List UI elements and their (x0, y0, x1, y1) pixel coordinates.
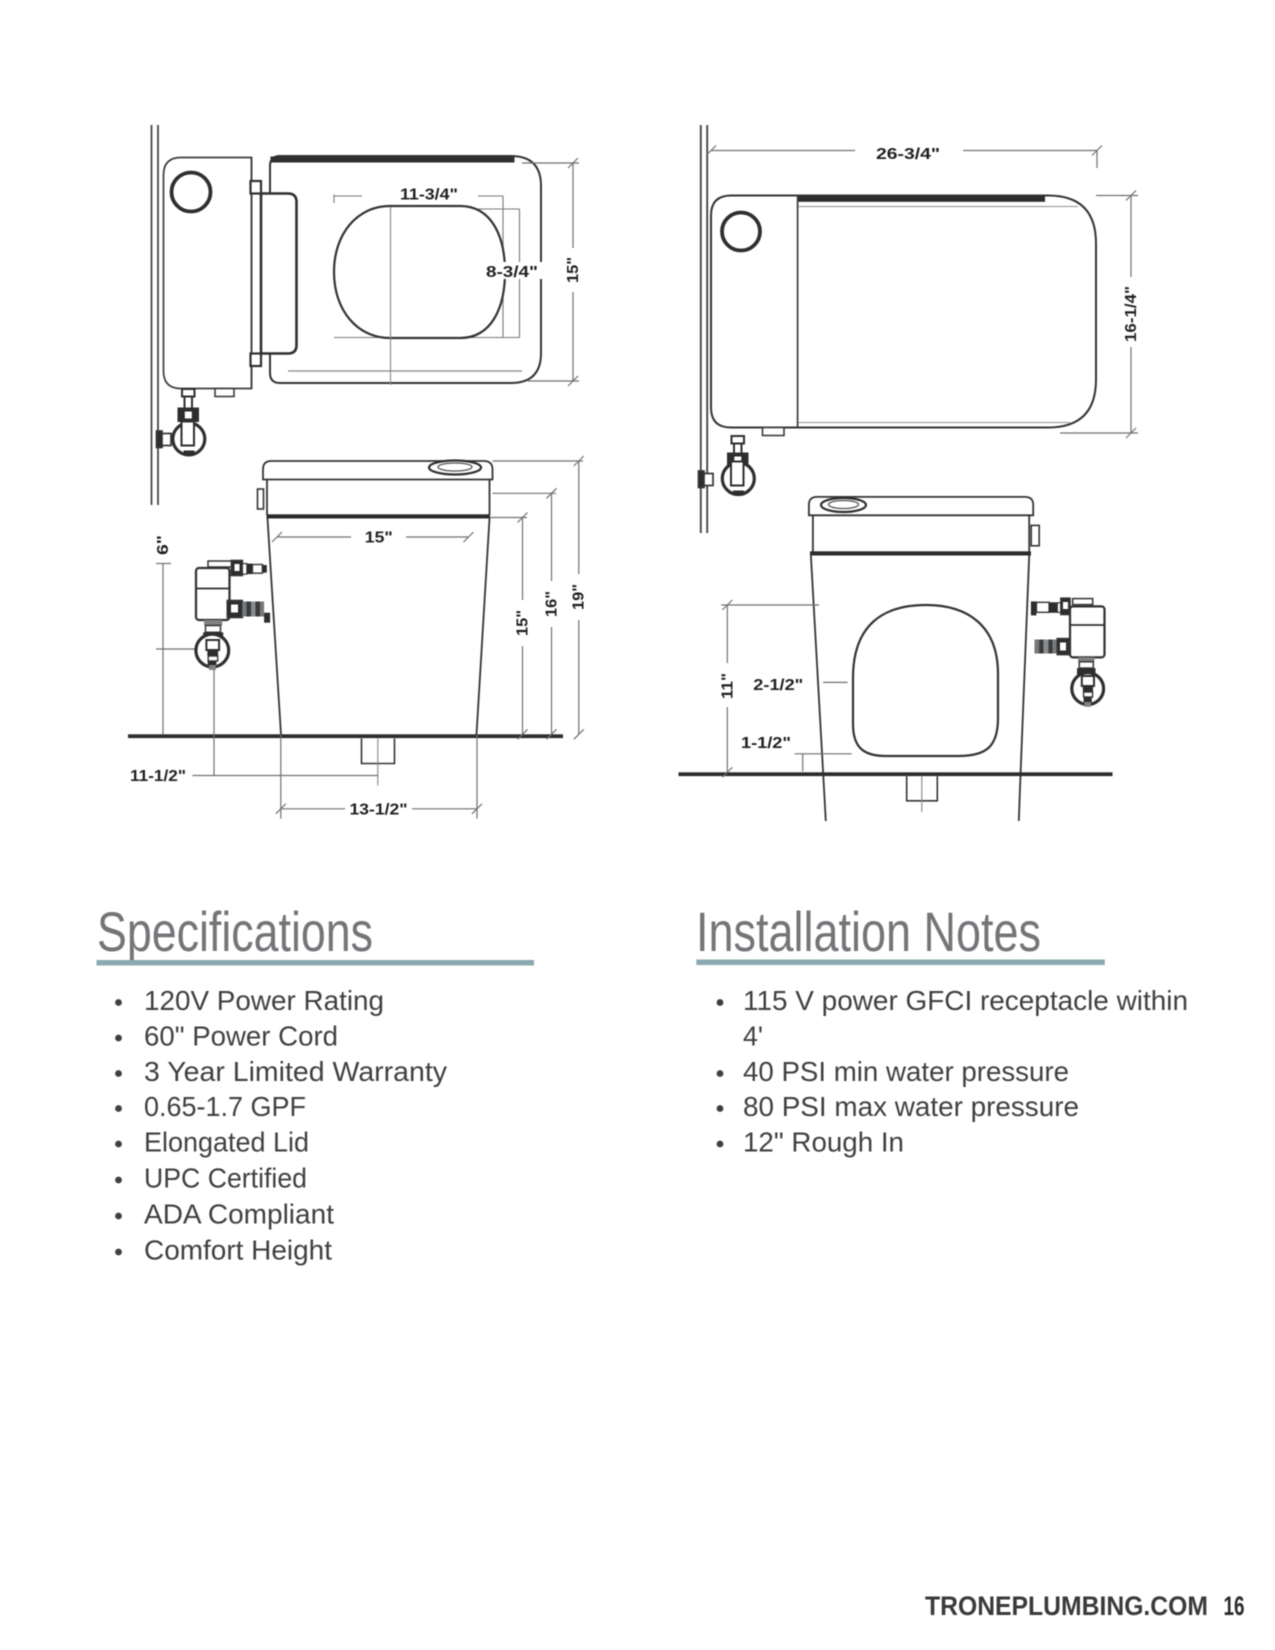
svg-text:Elongated Lid: Elongated Lid (144, 1127, 309, 1158)
svg-text:13-1/2": 13-1/2" (350, 801, 408, 818)
svg-text:19": 19" (571, 584, 588, 610)
svg-text:Installation Notes: Installation Notes (696, 900, 1041, 963)
svg-text:4': 4' (743, 1021, 763, 1052)
svg-text:12" Rough In: 12" Rough In (743, 1127, 904, 1158)
svg-text:115 V power GFCI receptacle wi: 115 V power GFCI receptacle within (743, 985, 1188, 1016)
svg-text:ADA Compliant: ADA Compliant (144, 1199, 334, 1230)
svg-text:3 Year Limited Warranty: 3 Year Limited Warranty (144, 1056, 447, 1087)
svg-text:40 PSI min water pressure: 40 PSI min water pressure (743, 1056, 1069, 1087)
svg-text:16: 16 (1224, 1591, 1245, 1621)
svg-text:16-1/4": 16-1/4" (1123, 286, 1140, 342)
svg-text:6": 6" (155, 535, 172, 555)
svg-text:11-1/2": 11-1/2" (130, 768, 186, 785)
svg-text:80 PSI max water pressure: 80 PSI max water pressure (743, 1091, 1079, 1122)
svg-text:16": 16" (544, 591, 561, 617)
svg-text:15": 15" (365, 530, 393, 547)
svg-text:60" Power Cord: 60" Power Cord (144, 1021, 338, 1052)
svg-text:26-3/4": 26-3/4" (876, 146, 940, 163)
svg-text:11-3/4": 11-3/4" (400, 187, 458, 204)
svg-text:11": 11" (720, 673, 737, 699)
svg-text:1-1/2": 1-1/2" (741, 735, 791, 752)
svg-text:120V Power Rating: 120V Power Rating (144, 985, 384, 1016)
svg-text:UPC Certified: UPC Certified (144, 1163, 307, 1194)
svg-text:8-3/4": 8-3/4" (486, 264, 538, 281)
svg-text:Comfort Height: Comfort Height (144, 1235, 332, 1266)
svg-text:0.65-1.7 GPF: 0.65-1.7 GPF (144, 1091, 306, 1122)
svg-text:15": 15" (515, 610, 532, 636)
svg-text:TRONEPLUMBING.COM: TRONEPLUMBING.COM (925, 1591, 1208, 1621)
svg-text:15": 15" (565, 257, 582, 283)
svg-text:2-1/2": 2-1/2" (753, 677, 803, 694)
svg-text:Specifications: Specifications (97, 900, 373, 963)
